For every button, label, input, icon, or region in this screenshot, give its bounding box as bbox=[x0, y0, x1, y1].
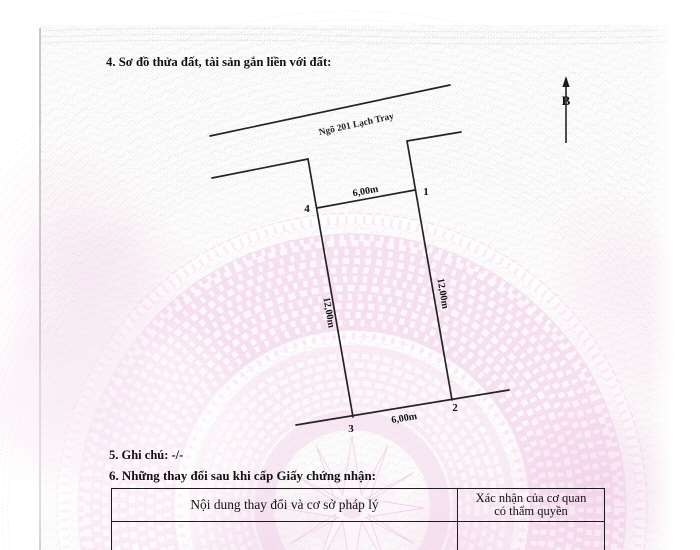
svg-text:B: B bbox=[562, 93, 571, 108]
svg-text:12,00m: 12,00m bbox=[434, 277, 450, 310]
svg-text:12,00m: 12,00m bbox=[320, 296, 336, 329]
svg-text:Ngõ 201 Lạch Tray: Ngõ 201 Lạch Tray bbox=[318, 112, 395, 138]
svg-text:1: 1 bbox=[423, 186, 429, 198]
svg-text:6,00m: 6,00m bbox=[391, 411, 419, 426]
svg-text:4: 4 bbox=[304, 203, 310, 215]
svg-text:2: 2 bbox=[452, 402, 458, 414]
svg-text:3: 3 bbox=[348, 423, 354, 435]
